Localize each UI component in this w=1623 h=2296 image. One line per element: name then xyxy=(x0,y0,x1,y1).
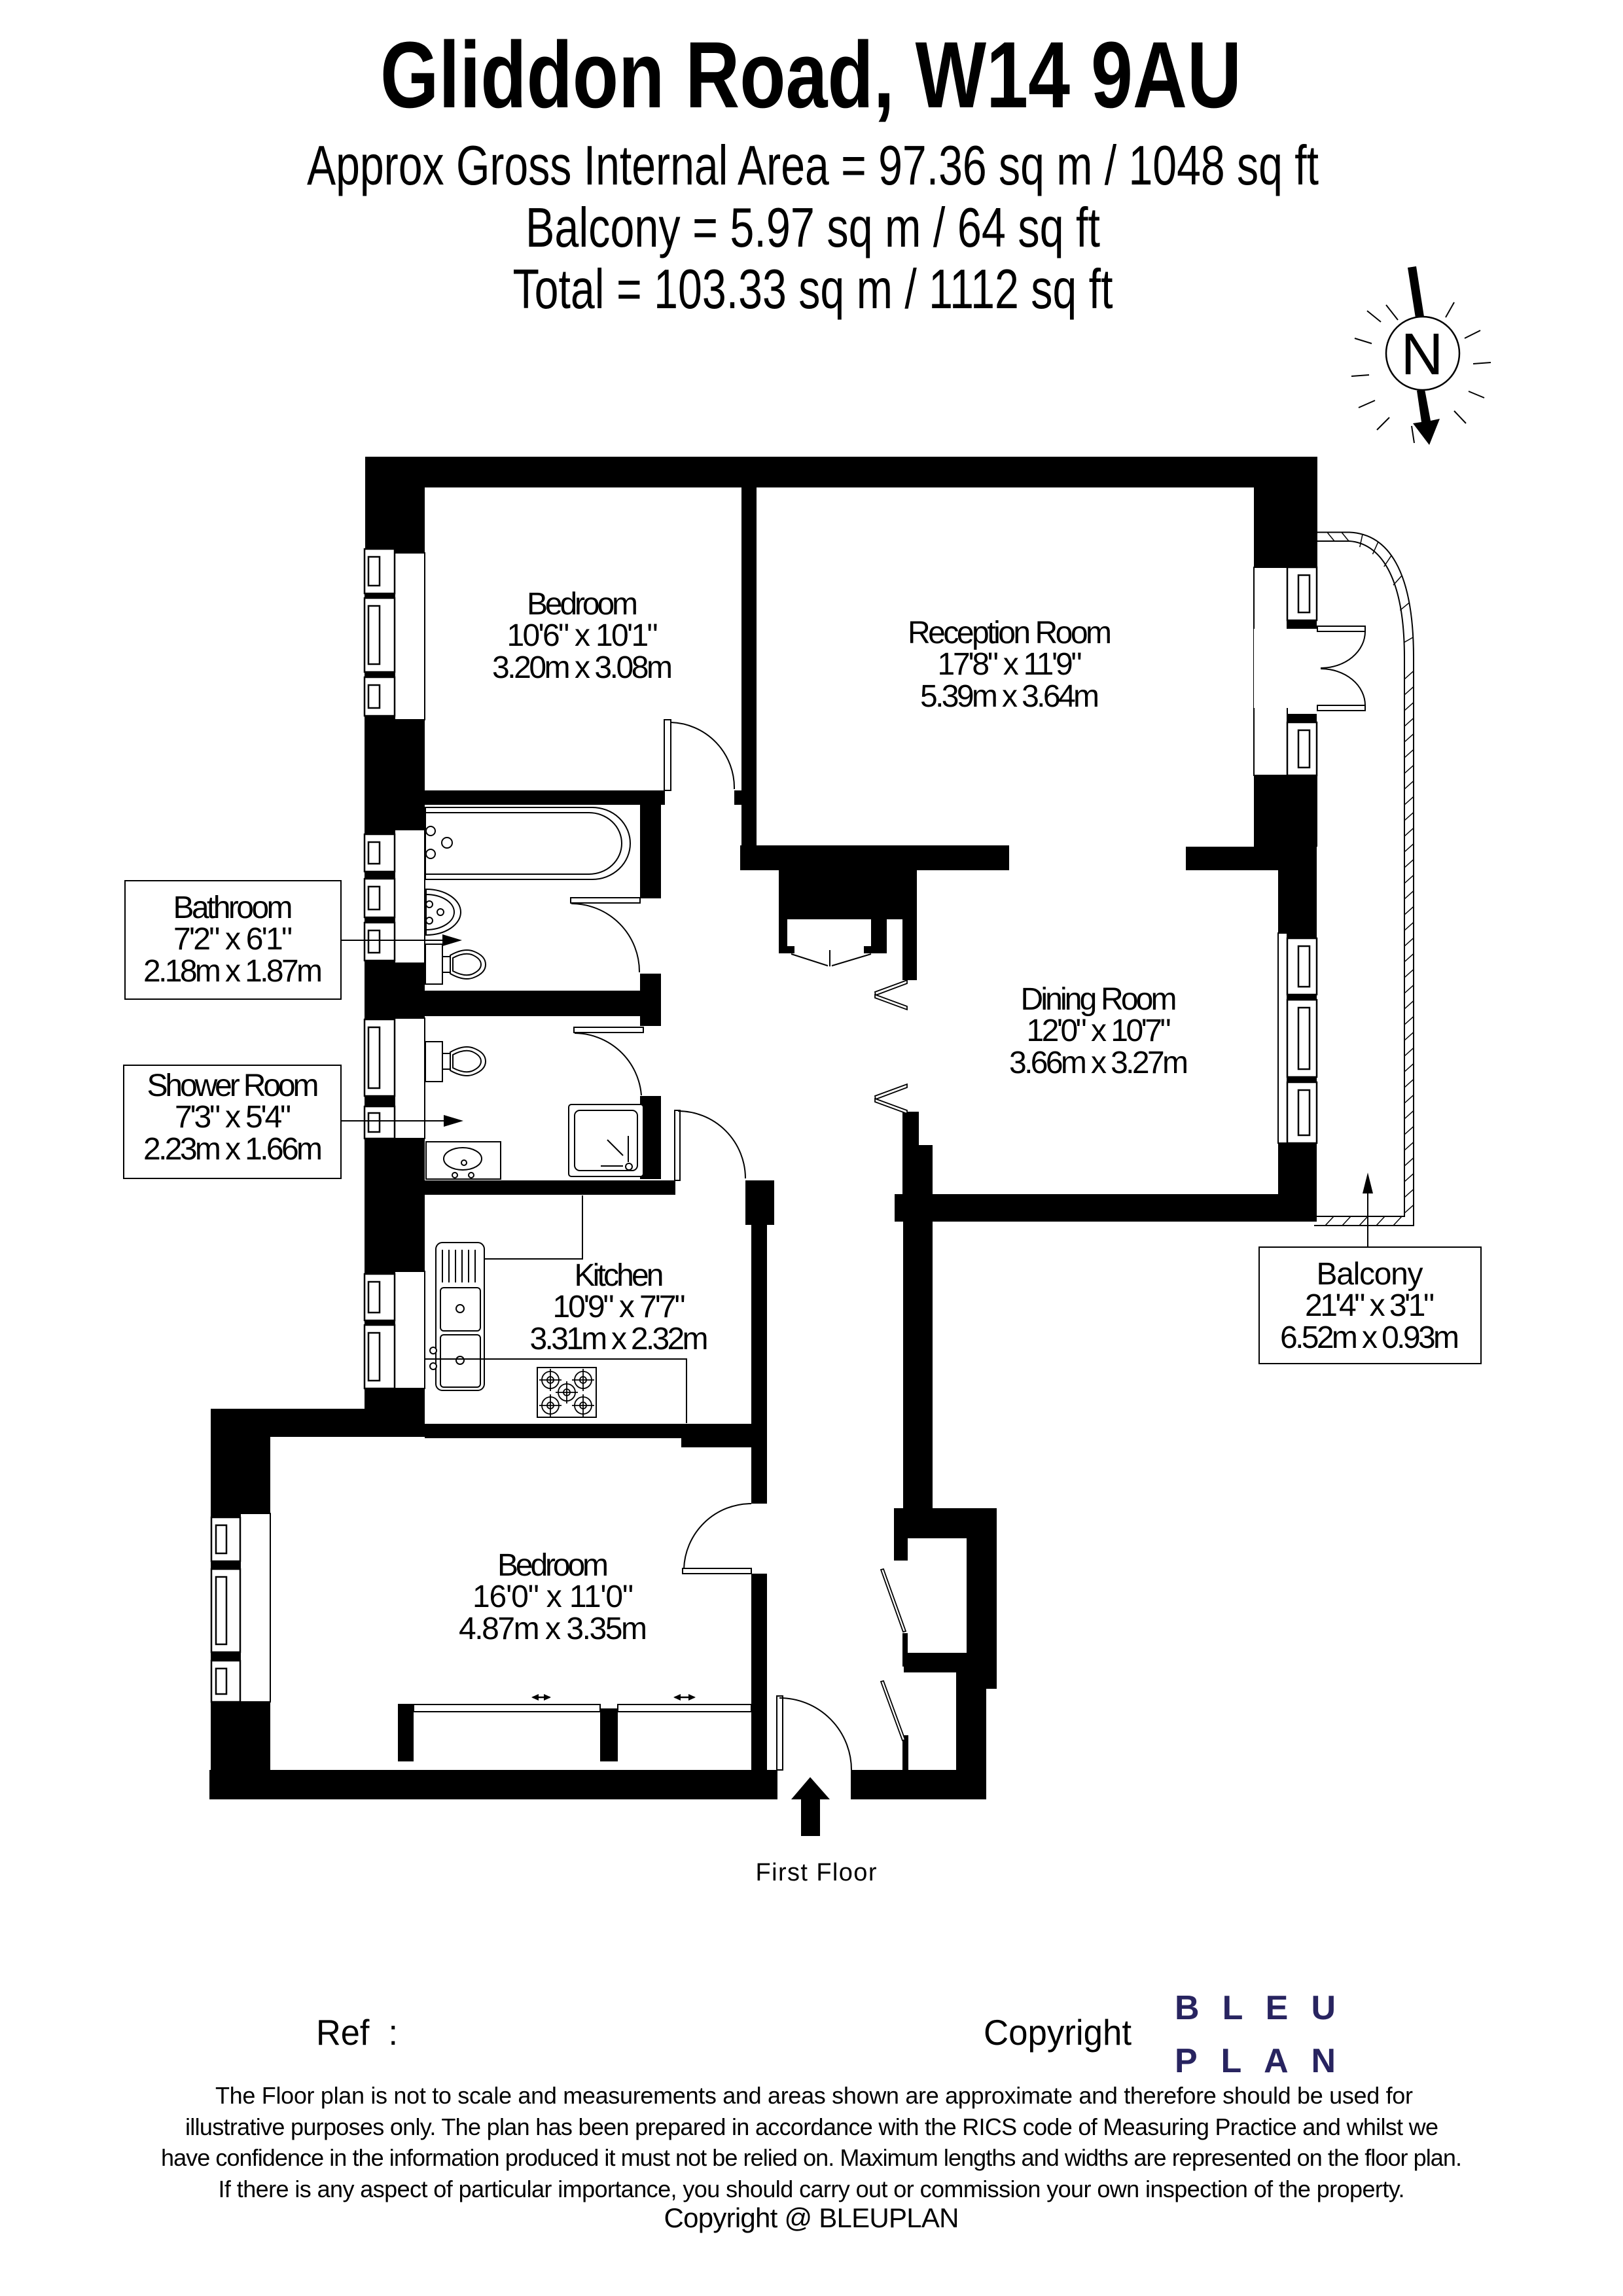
svg-text:Copyright: Copyright xyxy=(984,2012,1132,2053)
svg-text:3.20m x 3.08m: 3.20m x 3.08m xyxy=(492,650,673,685)
svg-text:have confidence in the informa: have confidence in the information produ… xyxy=(161,2144,1462,2171)
svg-text:B L E U: B L E U xyxy=(1175,1989,1336,2027)
svg-text:Ref :: Ref : xyxy=(316,2012,398,2053)
svg-text:Copyright @ BLEUPLAN: Copyright @ BLEUPLAN xyxy=(664,2202,959,2233)
svg-text:Balcony: Balcony xyxy=(1317,1257,1423,1292)
svg-text:10'9" x 7'7": 10'9" x 7'7" xyxy=(553,1290,686,1324)
svg-text:First Floor: First Floor xyxy=(756,1859,877,1886)
svg-text:3.66m x 3.27m: 3.66m x 3.27m xyxy=(1009,1046,1188,1080)
svg-text:The Floor plan is not to scale: The Floor plan is not to scale and measu… xyxy=(215,2082,1413,2109)
svg-text:7'2" x 6'1": 7'2" x 6'1" xyxy=(173,922,293,957)
svg-text:Dining Room: Dining Room xyxy=(1021,982,1177,1017)
svg-text:21'4" x 3'1": 21'4" x 3'1" xyxy=(1305,1288,1435,1323)
svg-text:Shower Room: Shower Room xyxy=(147,1069,319,1103)
svg-text:10'6" x 10'1": 10'6" x 10'1" xyxy=(507,618,658,653)
svg-text:Bedroom: Bedroom xyxy=(527,587,638,622)
svg-text:12'0" x 10'7": 12'0" x 10'7" xyxy=(1027,1014,1171,1048)
svg-text:Reception Room: Reception Room xyxy=(908,616,1112,650)
svg-text:If there is any aspect of part: If there is any aspect of particular imp… xyxy=(219,2176,1405,2202)
svg-text:6.52m x 0.93m: 6.52m x 0.93m xyxy=(1280,1320,1459,1355)
svg-text:16'0" x 11'0": 16'0" x 11'0" xyxy=(473,1580,633,1614)
svg-text:17'8" x 11'9": 17'8" x 11'9" xyxy=(938,647,1082,682)
svg-text:2.23m x 1.66m: 2.23m x 1.66m xyxy=(143,1132,323,1167)
svg-text:7'3" x 5'4": 7'3" x 5'4" xyxy=(175,1100,291,1135)
svg-text:Gliddon Road, W14 9AU: Gliddon Road, W14 9AU xyxy=(380,22,1241,128)
svg-text:3.31m x 2.32m: 3.31m x 2.32m xyxy=(530,1322,709,1356)
svg-text:Bathroom: Bathroom xyxy=(173,891,293,925)
svg-text:Bedroom: Bedroom xyxy=(497,1548,609,1583)
svg-text:Balcony = 5.97 sq m / 64 sq ft: Balcony = 5.97 sq m / 64 sq ft xyxy=(526,197,1100,259)
svg-text:4.87m x 3.35m: 4.87m x 3.35m xyxy=(459,1612,647,1646)
svg-text:N: N xyxy=(1401,322,1444,387)
svg-text:2.18m x 1.87m: 2.18m x 1.87m xyxy=(143,954,323,989)
svg-text:Kitchen: Kitchen xyxy=(575,1258,664,1293)
svg-text:Approx Gross Internal Area = 9: Approx Gross Internal Area = 97.36 sq m … xyxy=(307,135,1319,197)
svg-text:illustrative purposes only. Th: illustrative purposes only. The plan has… xyxy=(185,2113,1438,2140)
svg-text:5.39m x 3.64m: 5.39m x 3.64m xyxy=(920,679,1099,714)
svg-text:Total = 103.33 sq m / 1112 sq: Total = 103.33 sq m / 1112 sq ft xyxy=(513,258,1113,321)
